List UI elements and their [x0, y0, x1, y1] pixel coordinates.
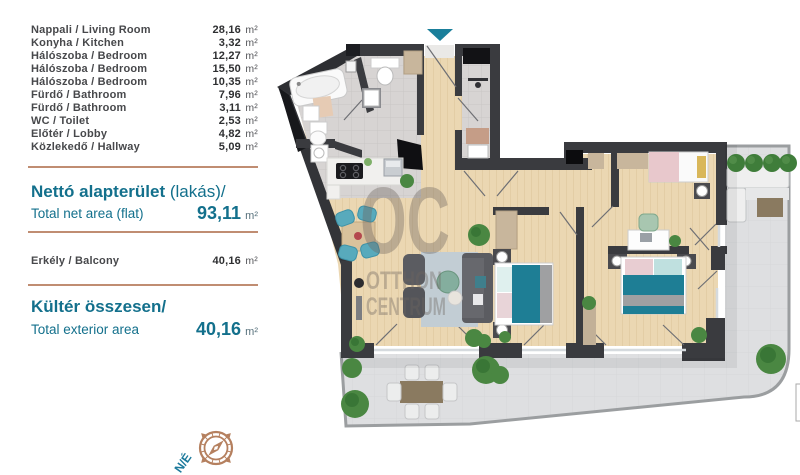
svg-text:CENTRUM: CENTRUM [366, 294, 446, 321]
svg-text:OTTHON: OTTHON [366, 266, 442, 295]
